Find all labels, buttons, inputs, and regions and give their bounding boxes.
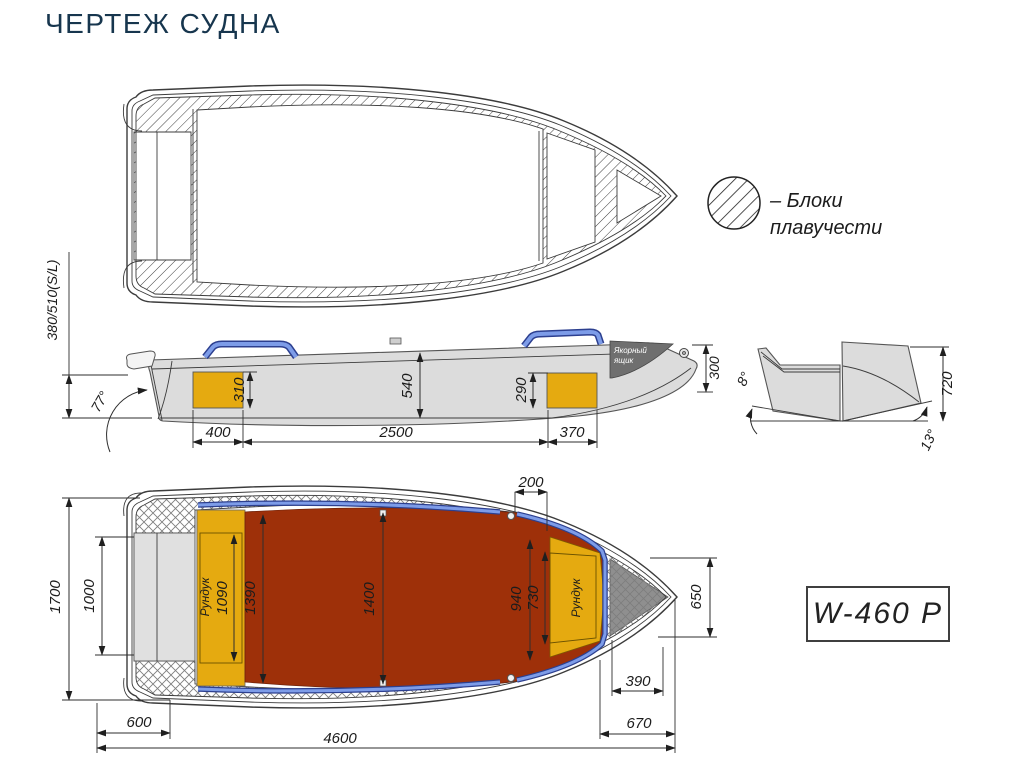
drawing-page: ЧЕРТЕЖ СУДНА: [0, 0, 1032, 784]
transom-view-right-half: [842, 342, 921, 421]
dim-stern-locker-height: 310: [231, 377, 248, 403]
dim-deadrise-angle: 13°: [917, 427, 941, 453]
dim-bow-overhang: 670: [626, 715, 652, 732]
dim-bow-locker-height: 290: [513, 377, 530, 404]
legend-label-line2: плавучести: [770, 217, 882, 239]
dim-anchor-locker-width: 390: [625, 673, 651, 690]
dim-transom-view-height: 720: [939, 371, 956, 397]
dim-flare-angle-arc: [750, 409, 757, 434]
anchor-box-label-line2: ящик: [613, 356, 635, 365]
dim-bow-cockpit-width: 940: [508, 586, 525, 612]
plan-view-transom-platform: [134, 533, 195, 661]
model-label-box: W-460 P: [806, 586, 950, 642]
side-view-motor-mount-cap: [127, 351, 156, 369]
dim-cockpit-length: 2500: [378, 424, 413, 441]
dim-stern-overhang: 600: [126, 714, 152, 731]
side-view-cleat: [390, 338, 401, 344]
dim-stern-locker-length: 400: [205, 424, 231, 441]
top-view-hull-outline: [127, 85, 677, 307]
legend-label-line1: – Блоки: [769, 190, 843, 212]
dim-bow-locker-width: 730: [525, 585, 542, 611]
dim-beam-overall: 1700: [47, 580, 64, 614]
dim-depth: 540: [399, 373, 416, 399]
bow-eye-icon: [680, 349, 689, 358]
dim-bow-locker-length: 370: [559, 424, 585, 441]
dim-bow-height: 300: [706, 356, 722, 380]
dim-stern-cockpit-width: 1390: [242, 581, 259, 615]
model-label: W-460 P: [813, 597, 943, 631]
stern-locker-label: Рундук: [198, 576, 212, 616]
side-view-stern-handle: [205, 344, 296, 357]
dim-flare-angle: 8°: [733, 369, 753, 388]
top-view: [123, 85, 677, 307]
legend: – Блоки плавучести: [708, 177, 882, 239]
dim-stern-locker-width: 1090: [214, 581, 231, 615]
plan-view-coaming-fitting-bottom: [508, 675, 515, 682]
dim-transom-height: 380/510(S/L): [44, 260, 60, 341]
dim-transom-inner-width: 1000: [81, 579, 98, 613]
side-view-bow-locker: [547, 373, 597, 408]
boat-drawing: – Блоки плавучести Якорный ящик: [0, 0, 1032, 784]
dim-deadrise-arc: [913, 407, 927, 421]
transom-view: 8° 720 13°: [733, 342, 956, 453]
dim-cockpit-width: 1400: [361, 582, 378, 616]
dim-bow-step: 200: [517, 474, 544, 491]
dim-bow-section-height: 650: [688, 584, 705, 610]
anchor-box-label-line1: Якорный: [613, 346, 647, 355]
plan-view-coaming-fitting-top: [508, 513, 515, 520]
buoyancy-block-icon: [708, 177, 760, 229]
dim-length-overall: 4600: [323, 730, 357, 747]
bow-locker-label: Рундук: [569, 577, 583, 617]
plan-view: Рундук Рундук 1700 1000 1090 1390 1400 9…: [47, 474, 717, 753]
dim-transom-angle: 77°: [87, 388, 112, 415]
dim-transom-angle-arc: [107, 390, 147, 452]
